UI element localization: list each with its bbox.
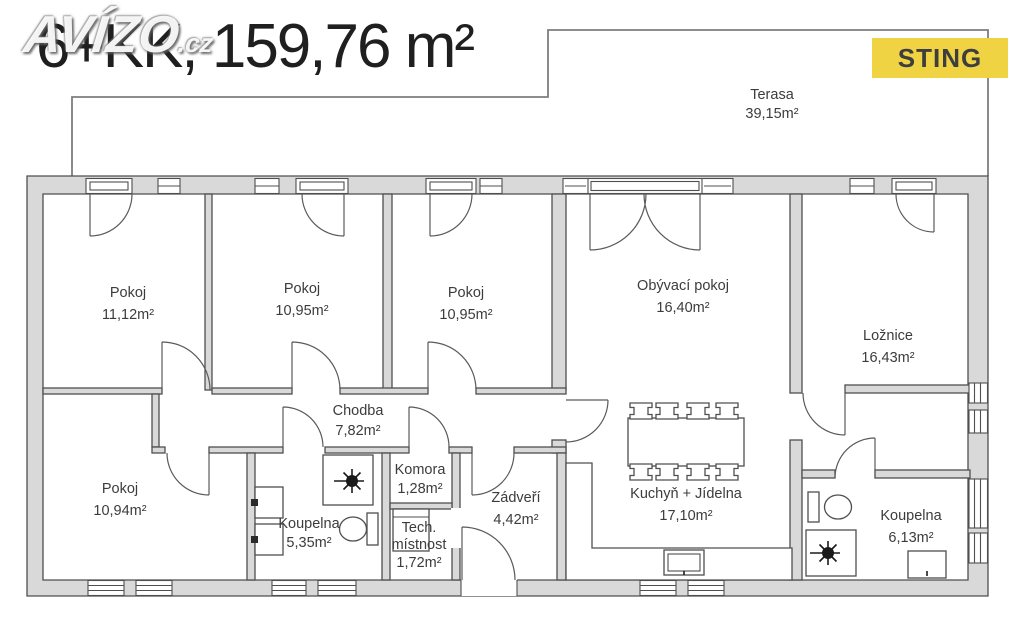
room-label: Komora <box>395 462 447 478</box>
door-arc <box>302 194 344 236</box>
window <box>272 581 306 596</box>
chair-icon <box>630 403 652 419</box>
room-label: Terasa <box>750 87 794 103</box>
room-area: 11,12m² <box>102 307 154 323</box>
room-label: Koupelna <box>880 508 942 524</box>
entrance-opening <box>461 579 517 596</box>
room-label: Pokoj <box>448 285 484 301</box>
toilet-icon <box>340 513 379 545</box>
tap-icon <box>251 536 258 543</box>
window <box>296 179 348 194</box>
room-label: Kuchyň + Jídelna <box>630 486 743 502</box>
watermark-suffix: .cz <box>177 28 215 58</box>
room-area: 1,28m² <box>397 481 442 497</box>
chair-icon <box>687 403 709 419</box>
door-arc <box>90 194 132 236</box>
sink-icon <box>255 487 283 518</box>
floorplan-image: Terasa 39,15m² Pokoj 11,12m² Pokoj 10,95… <box>0 0 1024 622</box>
room-area: 16,40m² <box>656 300 709 316</box>
window <box>426 179 476 194</box>
door-arc <box>430 194 472 236</box>
window <box>136 581 172 596</box>
chair-icon <box>656 464 678 480</box>
entrance-door-arc <box>462 527 515 580</box>
tech-door-opening <box>451 508 461 548</box>
room-area: 16,43m² <box>861 350 914 366</box>
chair-icon <box>630 464 652 480</box>
window <box>688 581 724 596</box>
door-arc <box>896 194 934 232</box>
tap-icon <box>251 499 258 506</box>
door-arc <box>162 342 210 390</box>
room-area: 7,82m² <box>335 423 380 439</box>
room-area: 10,95m² <box>275 303 328 319</box>
chair-icon <box>656 403 678 419</box>
room-area: 5,35m² <box>286 535 331 551</box>
room-label: Pokoj <box>102 481 138 497</box>
door-arc <box>566 400 608 442</box>
chair-icon <box>687 464 709 480</box>
door-arc <box>472 453 514 495</box>
room-label: místnost <box>392 537 447 553</box>
window <box>969 383 988 403</box>
window <box>969 479 988 528</box>
room-area: 6,13m² <box>888 530 933 546</box>
kitchen-sink-icon <box>664 550 704 575</box>
window <box>88 581 124 596</box>
double-door-arc <box>590 194 700 250</box>
window <box>640 581 676 596</box>
room-label: Tech. <box>402 520 437 536</box>
room-label: Pokoj <box>110 285 146 301</box>
room-area: 10,95m² <box>439 307 492 323</box>
chair-icon <box>716 403 738 419</box>
room-area: 10,94m² <box>93 503 146 519</box>
door-arc <box>167 453 209 495</box>
chair-icon <box>716 464 738 480</box>
shower-tray <box>908 551 946 578</box>
room-area: 17,10m² <box>659 508 712 524</box>
room-label: Ložnice <box>863 328 913 344</box>
dining-table <box>628 418 744 466</box>
door-arc <box>283 407 323 447</box>
room-area: 4,42m² <box>493 512 538 528</box>
window <box>318 581 356 596</box>
room-label: Obývací pokoj <box>637 278 729 294</box>
window <box>892 179 936 194</box>
door-arc <box>835 438 875 478</box>
door-arc <box>428 342 476 390</box>
room-label: Pokoj <box>284 281 320 297</box>
room-area: 39,15m² <box>745 106 798 122</box>
door-arc <box>292 342 340 390</box>
toilet-icon <box>808 492 852 522</box>
room-area: 1,72m² <box>396 555 441 571</box>
window <box>86 179 132 194</box>
room-label: Koupelna <box>278 516 340 532</box>
window <box>969 410 988 433</box>
room-label: Zádveří <box>491 490 540 506</box>
watermark-text: AVÍZO <box>21 6 182 64</box>
sting-logo: STING <box>872 38 1008 78</box>
door-arc <box>409 407 449 447</box>
avizo-watermark: AVÍZO.cz <box>21 9 216 61</box>
room-label: Chodba <box>333 403 385 419</box>
window <box>969 533 988 563</box>
door-arc <box>803 393 845 435</box>
floorplan-drawing: Terasa 39,15m² Pokoj 11,12m² Pokoj 10,95… <box>0 0 1024 622</box>
